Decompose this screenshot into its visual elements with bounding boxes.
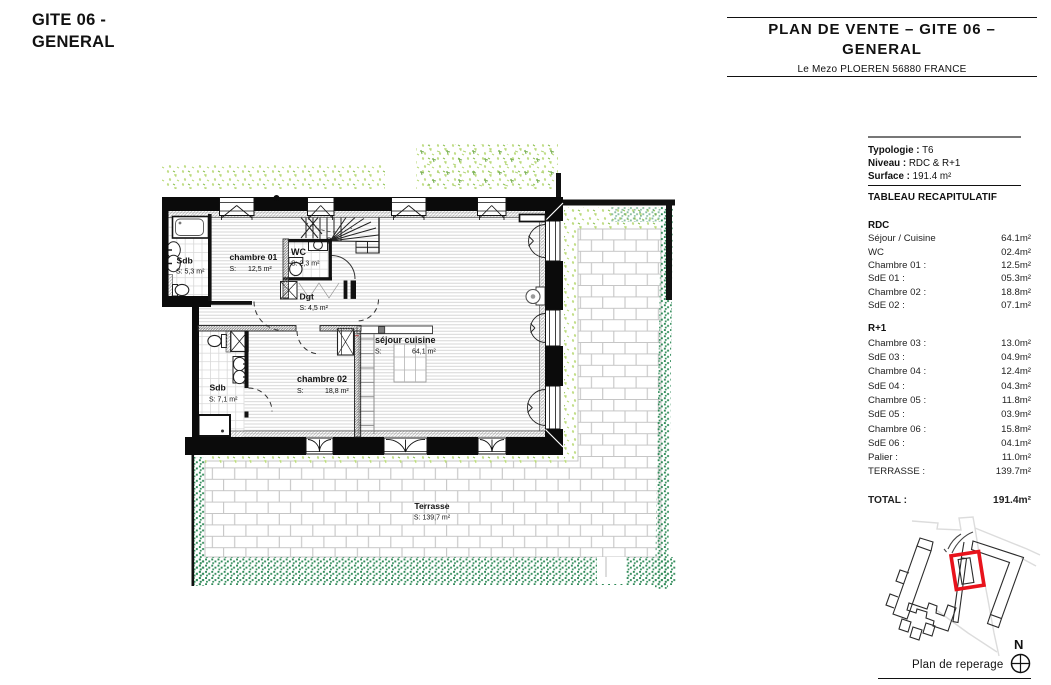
svg-text:Sdb: Sdb — [210, 383, 226, 393]
svg-text:chambre 02: chambre 02 — [297, 374, 347, 384]
svg-text:Dgt: Dgt — [300, 292, 314, 302]
svg-text:S: 4,5 m²: S: 4,5 m² — [300, 305, 329, 312]
svg-text:chambre 01: chambre 01 — [230, 252, 278, 262]
svg-text:S: 2,3 m²: S: 2,3 m² — [291, 261, 320, 268]
svg-text:12,5 m²: 12,5 m² — [248, 266, 272, 273]
svg-text:S: 139,7 m²: S: 139,7 m² — [414, 515, 451, 522]
svg-text:Sdb: Sdb — [177, 256, 193, 266]
svg-text:S:: S: — [230, 266, 237, 273]
svg-text:S: 7,1 m²: S: 7,1 m² — [209, 397, 238, 404]
svg-text:18,8 m²: 18,8 m² — [325, 388, 349, 395]
svg-text:64,1 m²: 64,1 m² — [412, 349, 436, 356]
svg-text:WC: WC — [291, 247, 306, 257]
svg-text:séjour cuisine: séjour cuisine — [375, 335, 436, 345]
svg-text:S: 5,3 m²: S: 5,3 m² — [176, 269, 205, 276]
svg-text:S:: S: — [375, 349, 382, 356]
svg-text:S:: S: — [297, 388, 304, 395]
svg-text:Terrasse: Terrasse — [414, 501, 449, 511]
